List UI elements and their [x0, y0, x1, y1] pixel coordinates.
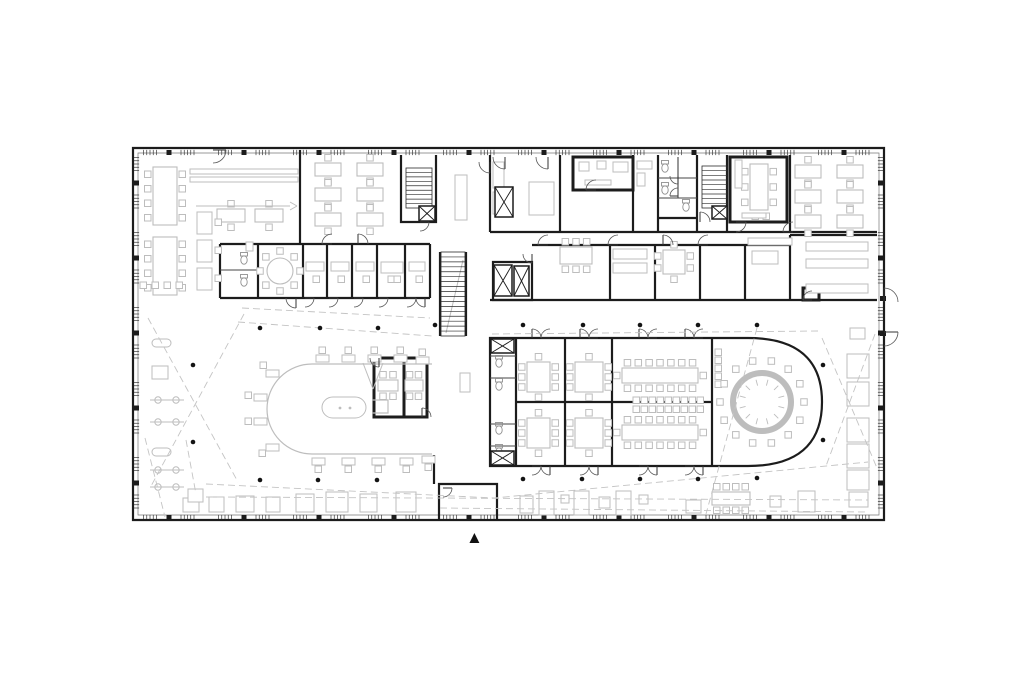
door-swing	[416, 298, 425, 307]
table	[795, 190, 821, 203]
chair	[635, 442, 642, 449]
door-swing	[694, 466, 703, 475]
chair	[145, 200, 152, 207]
chair	[785, 366, 792, 373]
table	[560, 247, 592, 264]
chair	[179, 270, 186, 277]
chair	[687, 265, 694, 272]
circulation-dashed-line	[492, 331, 818, 334]
toilet-icon	[241, 278, 247, 286]
facade-column	[392, 150, 397, 155]
chair	[668, 360, 675, 367]
furniture	[396, 492, 416, 512]
chair	[742, 507, 749, 514]
door-swing	[700, 212, 710, 222]
table	[315, 163, 341, 176]
desk	[416, 357, 429, 364]
circulation-dashed-line	[238, 322, 432, 336]
structural-column-dot	[696, 323, 701, 328]
furniture	[574, 491, 589, 515]
chair	[277, 288, 284, 295]
desk	[316, 355, 329, 362]
furniture	[409, 262, 425, 271]
furniture	[847, 470, 869, 490]
chair	[657, 385, 664, 392]
chair	[681, 406, 688, 413]
toilet-icon	[662, 164, 668, 172]
chair	[562, 239, 569, 246]
chair	[646, 442, 653, 449]
door-swing	[639, 329, 648, 338]
furniture	[806, 242, 868, 251]
chair	[742, 199, 749, 206]
door-swing	[213, 150, 226, 163]
chair	[586, 450, 593, 457]
chair	[583, 266, 590, 273]
door-swing	[608, 235, 618, 245]
door-swing	[407, 298, 416, 307]
round-table-tick	[774, 386, 778, 390]
chair	[419, 349, 426, 356]
desk	[422, 456, 435, 463]
chair	[583, 239, 590, 246]
furniture	[296, 494, 314, 512]
chair	[785, 432, 792, 439]
structural-column-dot	[696, 477, 701, 482]
chair	[415, 393, 422, 400]
table	[527, 418, 550, 448]
round-table	[267, 258, 293, 284]
chair	[519, 374, 526, 381]
chair	[668, 442, 675, 449]
table	[795, 165, 821, 178]
round-table-tick	[778, 396, 784, 398]
chair	[179, 171, 186, 178]
chair	[586, 410, 593, 417]
table	[405, 380, 423, 391]
chair	[390, 372, 397, 379]
furniture-line	[363, 363, 373, 389]
chair	[535, 450, 542, 457]
chair	[179, 256, 186, 263]
structural-column-dot	[755, 323, 760, 328]
round-table-tick	[774, 414, 778, 418]
chair	[145, 256, 152, 263]
chair	[715, 373, 722, 380]
chair	[721, 381, 728, 388]
furniture	[209, 497, 224, 512]
furniture	[686, 500, 701, 513]
facade-column	[878, 256, 883, 261]
chair	[179, 241, 186, 248]
chair	[768, 440, 775, 447]
chair	[266, 224, 273, 231]
toilet-icon	[496, 426, 502, 434]
chair	[665, 406, 672, 413]
furniture	[579, 162, 589, 171]
facade-column	[692, 150, 697, 155]
round-table-tick	[740, 406, 746, 408]
furniture	[356, 262, 374, 271]
facade-column	[767, 150, 772, 155]
chair	[140, 282, 147, 289]
chair	[770, 184, 777, 191]
chair	[228, 224, 235, 231]
toilet-icon	[496, 382, 502, 390]
chair	[689, 385, 696, 392]
chair	[605, 420, 612, 427]
structural-column-dot	[581, 323, 586, 328]
chair	[215, 219, 222, 226]
chair	[678, 442, 685, 449]
facade-column	[317, 150, 322, 155]
table	[837, 190, 863, 203]
chair	[657, 417, 664, 424]
chair	[567, 374, 574, 381]
table	[837, 215, 863, 228]
chair	[416, 276, 423, 283]
chair	[380, 393, 387, 400]
table	[153, 167, 177, 225]
chair	[657, 406, 664, 413]
furniture-line	[290, 206, 297, 210]
furniture	[322, 397, 366, 418]
toilet-icon	[683, 203, 689, 211]
chair	[380, 372, 387, 379]
chair	[805, 230, 812, 237]
chair	[673, 397, 680, 404]
desk	[312, 458, 325, 465]
chair	[655, 253, 662, 260]
table	[622, 368, 698, 383]
chair	[562, 266, 569, 273]
facade-column	[134, 481, 139, 486]
stair-icon	[702, 166, 727, 208]
chair	[552, 430, 559, 437]
north-arrow: ▲	[466, 529, 483, 546]
chair	[641, 397, 648, 404]
chair	[697, 406, 704, 413]
chair	[768, 358, 775, 365]
chair	[390, 393, 397, 400]
circulation-dashed-line	[186, 440, 196, 494]
furniture	[847, 418, 869, 442]
door-swing	[580, 466, 589, 475]
chair	[176, 282, 183, 289]
facade-column	[134, 331, 139, 336]
chair	[657, 442, 664, 449]
chair	[605, 440, 612, 447]
chair	[717, 399, 724, 406]
chair	[657, 360, 664, 367]
chair	[633, 406, 640, 413]
chair	[179, 186, 186, 193]
furniture	[849, 492, 868, 507]
chair	[671, 276, 678, 283]
chair	[519, 430, 526, 437]
chair	[689, 397, 696, 404]
chair	[678, 360, 685, 367]
chair	[552, 420, 559, 427]
chair	[245, 392, 252, 399]
chair	[635, 417, 642, 424]
door-swing	[589, 466, 598, 475]
chair	[733, 507, 740, 514]
furniture	[188, 489, 203, 502]
furniture	[246, 242, 253, 251]
chair	[646, 360, 653, 367]
structural-column-dot	[191, 363, 196, 368]
furniture	[613, 162, 628, 172]
chair	[145, 270, 152, 277]
chair	[678, 417, 685, 424]
chair	[847, 182, 854, 189]
door-swing	[305, 298, 314, 307]
chair	[646, 417, 653, 424]
chair	[552, 384, 559, 391]
chair	[605, 384, 612, 391]
door-swing	[322, 234, 332, 244]
furniture	[770, 496, 781, 507]
door-swing	[541, 466, 550, 475]
circulation-dashed-line	[206, 462, 868, 498]
structural-column-dot	[521, 323, 526, 328]
chair	[179, 215, 186, 222]
chair	[733, 484, 740, 491]
chair	[535, 410, 542, 417]
furniture	[637, 161, 652, 169]
table	[255, 209, 283, 222]
chair	[367, 180, 374, 187]
chair	[624, 442, 631, 449]
chair	[655, 265, 662, 272]
chair	[145, 186, 152, 193]
chair	[605, 374, 612, 381]
furniture	[331, 262, 349, 271]
chair	[605, 364, 612, 371]
round-table-tick	[746, 414, 750, 418]
chair	[847, 157, 854, 164]
structural-column-dot	[258, 478, 263, 483]
chair	[179, 200, 186, 207]
chair	[145, 171, 152, 178]
chair	[668, 385, 675, 392]
furniture	[806, 259, 868, 268]
table	[357, 213, 383, 226]
furniture	[735, 160, 742, 188]
floor-plan-svg	[0, 0, 1024, 684]
round-table-tick	[740, 396, 746, 398]
door-swing	[479, 162, 490, 173]
facade-column	[542, 150, 547, 155]
table	[527, 362, 550, 392]
chair	[152, 282, 159, 289]
chair	[635, 385, 642, 392]
chair	[415, 372, 422, 379]
facade-column	[167, 150, 172, 155]
chair	[797, 417, 804, 424]
furniture	[597, 161, 606, 169]
chair	[689, 442, 696, 449]
desk	[372, 458, 385, 465]
furniture	[381, 262, 403, 273]
desk	[254, 418, 267, 425]
door-swing	[648, 466, 657, 475]
chair	[535, 394, 542, 401]
chair	[519, 364, 526, 371]
furniture	[455, 175, 467, 220]
door-swing	[884, 332, 898, 346]
door-swing	[286, 298, 296, 308]
detail-dot	[349, 407, 352, 410]
chair	[552, 364, 559, 371]
chair	[665, 397, 672, 404]
table	[663, 250, 685, 274]
chair	[749, 358, 756, 365]
round-table-tick	[766, 418, 768, 424]
furniture	[460, 373, 470, 392]
chair	[394, 276, 401, 283]
chair	[633, 397, 640, 404]
furniture	[326, 492, 348, 512]
desk	[266, 444, 279, 451]
desk	[342, 355, 355, 362]
furniture	[798, 491, 815, 512]
structural-column-dot	[580, 477, 585, 482]
chair	[291, 282, 298, 289]
chair	[689, 406, 696, 413]
table	[575, 418, 603, 448]
chair	[715, 365, 722, 372]
facade-column	[842, 150, 847, 155]
chair	[671, 242, 678, 249]
structural-column-dot	[318, 326, 323, 331]
chair	[363, 276, 370, 283]
chair	[567, 440, 574, 447]
door-swing	[354, 298, 363, 307]
chair	[805, 182, 812, 189]
chair	[277, 248, 284, 255]
chair	[567, 384, 574, 391]
facade-column	[878, 406, 883, 411]
chair	[700, 429, 707, 436]
furniture	[616, 491, 631, 515]
furniture	[850, 328, 865, 339]
chair	[614, 372, 621, 379]
chair	[519, 420, 526, 427]
facade-column	[134, 406, 139, 411]
chair	[801, 399, 808, 406]
furniture	[847, 354, 869, 378]
chair	[164, 282, 171, 289]
chair	[552, 374, 559, 381]
chair	[624, 360, 631, 367]
table	[750, 164, 768, 210]
structural-column-dot	[638, 323, 643, 328]
chair	[721, 417, 728, 424]
furniture	[529, 182, 554, 215]
chair	[641, 406, 648, 413]
desk	[400, 458, 413, 465]
wall-segment	[439, 484, 497, 520]
round-table-tick	[756, 418, 758, 424]
chair	[649, 406, 656, 413]
chair	[367, 155, 374, 162]
furniture	[806, 284, 868, 293]
chair	[742, 484, 749, 491]
toilet-icon	[241, 256, 247, 264]
door-swing	[379, 298, 388, 307]
furniture	[236, 496, 254, 512]
chair	[535, 354, 542, 361]
structural-column-dot	[191, 440, 196, 445]
door-swing	[420, 222, 429, 231]
chair	[657, 397, 664, 404]
door-jamb	[880, 296, 886, 301]
furniture	[190, 177, 298, 182]
chair	[345, 466, 352, 473]
chair	[145, 215, 152, 222]
chair	[325, 180, 332, 187]
chair	[733, 432, 740, 439]
chair	[338, 276, 345, 283]
furniture	[190, 169, 298, 174]
chair	[291, 254, 298, 260]
chair	[770, 199, 777, 206]
toilet-icon	[662, 186, 668, 194]
chair	[649, 397, 656, 404]
furniture	[847, 382, 869, 406]
structural-column-dot	[316, 478, 321, 483]
round-table-tick	[778, 406, 784, 408]
furniture	[847, 444, 869, 468]
chair	[805, 157, 812, 164]
chair	[403, 466, 410, 473]
round-table-tick	[746, 386, 750, 390]
structural-column-dot	[433, 323, 438, 328]
chair	[624, 385, 631, 392]
table	[357, 163, 383, 176]
door-swing	[329, 298, 338, 307]
chair	[345, 347, 352, 354]
round-table-tick	[766, 380, 768, 386]
chair	[263, 254, 270, 260]
chair	[375, 466, 382, 473]
chair	[797, 381, 804, 388]
chair	[614, 429, 621, 436]
chair	[805, 207, 812, 214]
chair	[700, 372, 707, 379]
chair	[297, 268, 304, 275]
chair	[681, 397, 688, 404]
chair	[259, 450, 266, 457]
door-swing	[358, 234, 368, 244]
table	[357, 188, 383, 201]
chair	[145, 241, 152, 248]
furniture	[197, 240, 212, 262]
chair	[257, 268, 264, 275]
furniture	[360, 494, 377, 512]
chair	[687, 253, 694, 260]
door-swing	[670, 176, 678, 184]
table	[795, 215, 821, 228]
chair	[567, 430, 574, 437]
facade-column	[134, 181, 139, 186]
structural-column-dot	[638, 477, 643, 482]
chair	[245, 418, 252, 425]
door-swing	[648, 329, 657, 338]
furniture	[493, 162, 504, 188]
